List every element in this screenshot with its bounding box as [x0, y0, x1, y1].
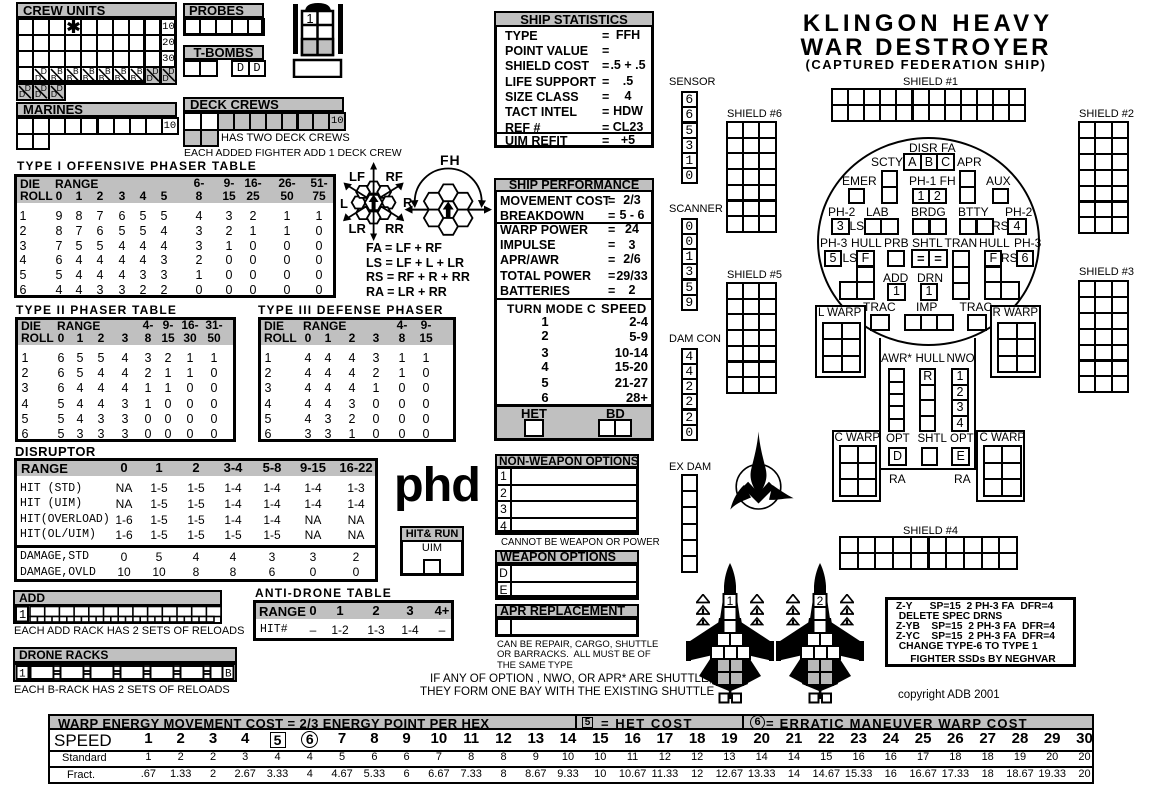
svg-text:1: 1: [306, 11, 313, 26]
svg-text:B: B: [225, 669, 232, 681]
svg-text:2: 2: [817, 594, 824, 608]
svg-text:FH: FH: [440, 152, 461, 168]
svg-text:1: 1: [727, 594, 734, 608]
svg-text:1: 1: [19, 608, 26, 622]
svg-text:1: 1: [19, 669, 26, 681]
